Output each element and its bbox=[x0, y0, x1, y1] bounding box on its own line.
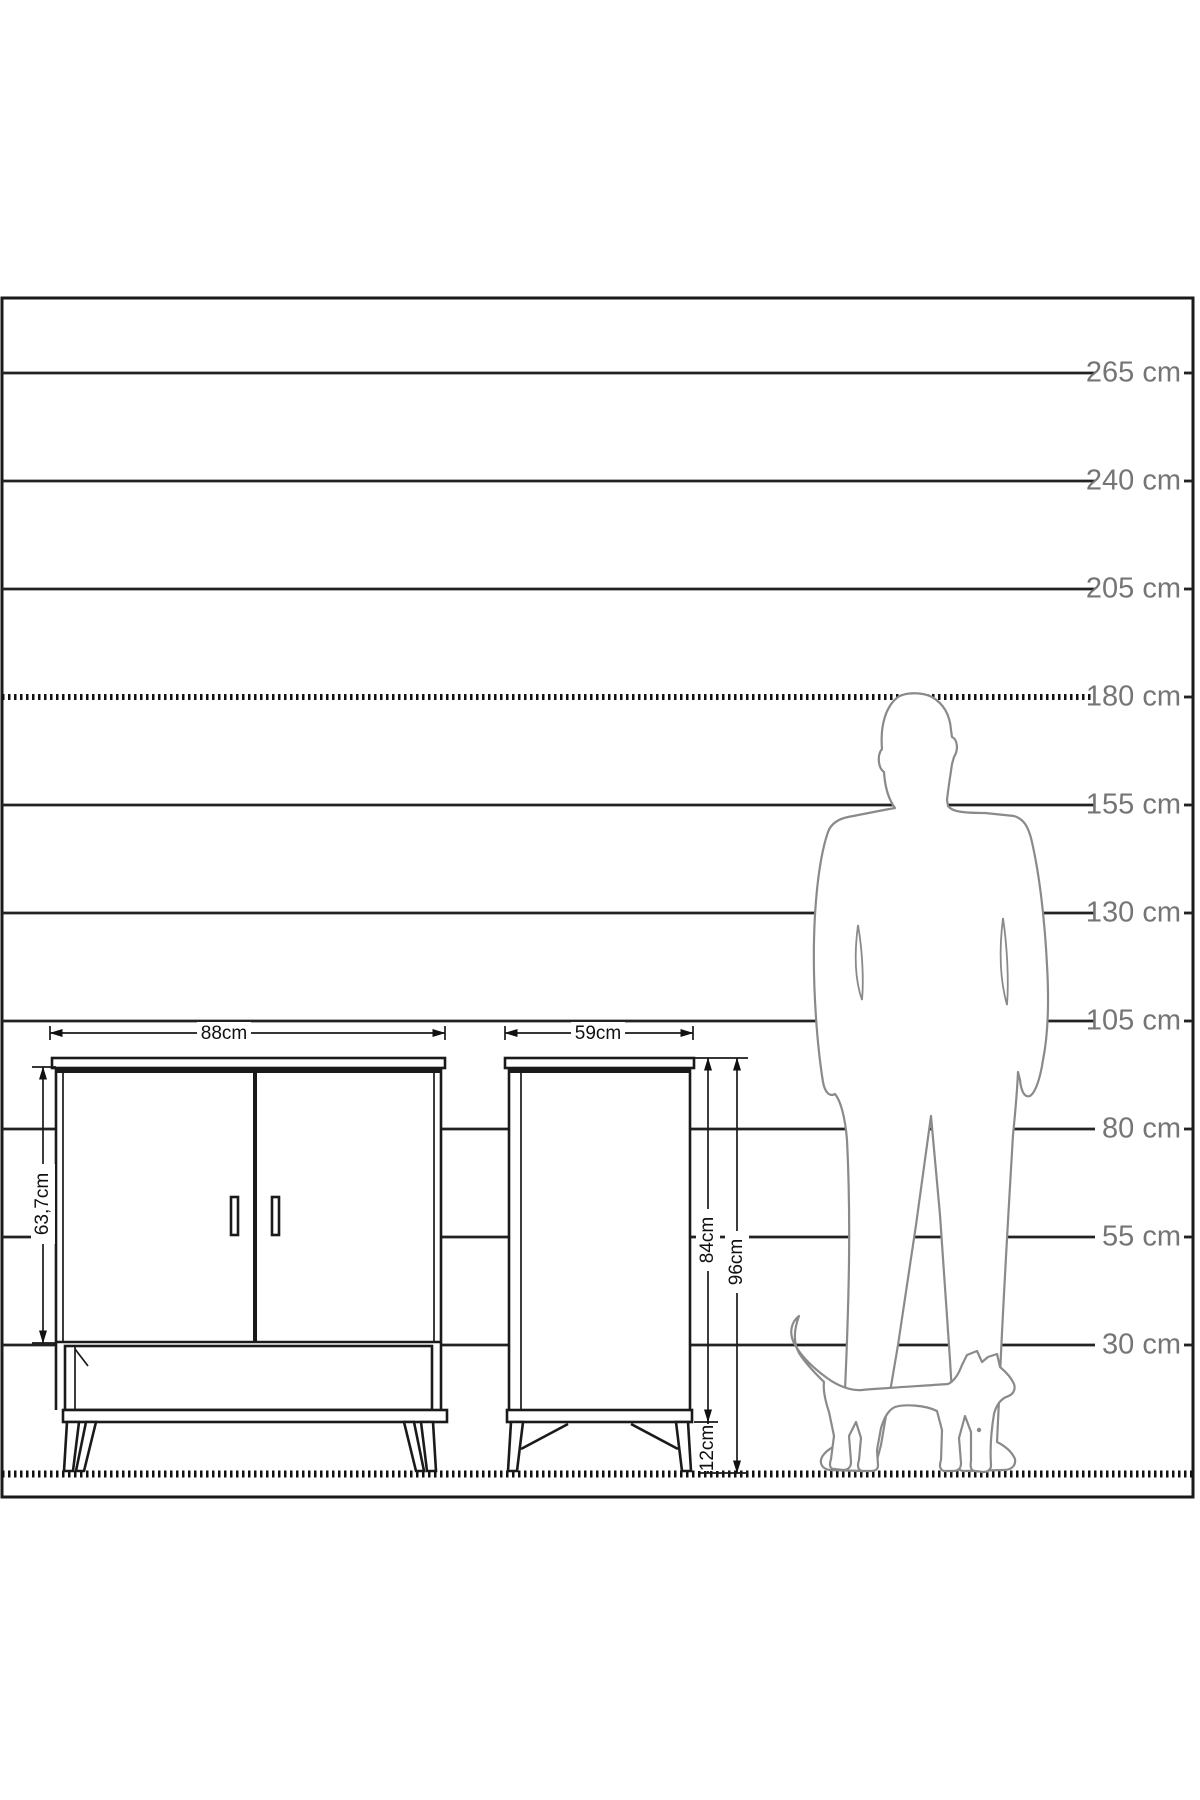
front-width-label: 88cm bbox=[201, 1023, 247, 1044]
side-top-panel bbox=[505, 1058, 694, 1068]
scale-label-130: 130 cm bbox=[1086, 897, 1181, 929]
side-left-leg bbox=[508, 1422, 523, 1471]
front-right-door-handle bbox=[272, 1197, 279, 1235]
dimension-door-height: 63,7cm bbox=[31, 1067, 56, 1343]
side-right-leg-brace bbox=[631, 1424, 678, 1449]
cat-fur-dot bbox=[977, 1428, 981, 1432]
scale-label-155: 155 cm bbox=[1086, 789, 1181, 821]
side-left-leg-brace bbox=[521, 1424, 568, 1449]
man-outline bbox=[814, 693, 1048, 1471]
scale-label-80: 80 cm bbox=[1102, 1113, 1181, 1145]
scale-label-205: 205 cm bbox=[1086, 573, 1181, 605]
scale-label-240: 240 cm bbox=[1086, 465, 1181, 497]
scale-label-55: 55 cm bbox=[1102, 1221, 1181, 1253]
man-silhouette bbox=[814, 693, 1048, 1471]
scale-label-180: 180 cm bbox=[1086, 681, 1181, 713]
dimension-side-depth: 59cm bbox=[505, 1022, 693, 1044]
diagram-canvas: 88cm 59cm 63,7cm 84cm bbox=[0, 0, 1200, 1800]
side-right-leg bbox=[676, 1422, 691, 1471]
scale-label-30: 30 cm bbox=[1102, 1329, 1181, 1361]
dimension-body-height: 84cm bbox=[696, 1058, 720, 1422]
front-drawer bbox=[65, 1346, 432, 1410]
cabinet-side-view bbox=[505, 1058, 694, 1471]
cabinet-front-view bbox=[52, 1058, 447, 1471]
body-height-label: 84cm bbox=[697, 1217, 718, 1263]
dimension-total-height: 96cm bbox=[725, 1058, 749, 1473]
door-height-label: 63,7cm bbox=[32, 1173, 53, 1235]
front-left-door-handle bbox=[231, 1197, 238, 1235]
side-body-fill bbox=[508, 1062, 690, 1422]
dimension-diagram: 88cm 59cm 63,7cm 84cm bbox=[0, 0, 1200, 1800]
scale-label-105: 105 cm bbox=[1086, 1005, 1181, 1037]
dimension-leg-height: 12cm bbox=[696, 1422, 720, 1473]
total-height-label: 96cm bbox=[726, 1239, 747, 1285]
leg-height-label: 12cm bbox=[697, 1425, 718, 1471]
height-scale-labels: 265 cm 240 cm 205 cm 180 cm 155 cm 130 c… bbox=[1086, 357, 1181, 1361]
side-depth-label: 59cm bbox=[575, 1023, 621, 1044]
front-top-panel bbox=[52, 1058, 445, 1068]
side-bottom-rail bbox=[507, 1410, 692, 1422]
scale-label-265: 265 cm bbox=[1086, 357, 1181, 389]
dimension-front-width: 88cm bbox=[50, 1022, 445, 1044]
front-bottom-rail bbox=[63, 1410, 447, 1422]
